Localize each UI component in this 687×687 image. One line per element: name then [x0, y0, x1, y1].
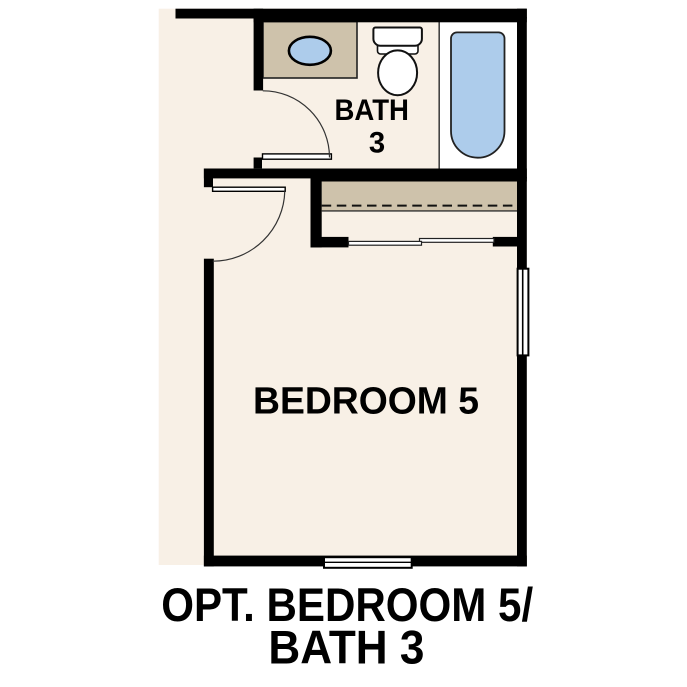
svg-text:BATH 3: BATH 3 [268, 621, 424, 674]
svg-text:3: 3 [369, 127, 385, 160]
svg-text:BATH: BATH [334, 94, 409, 127]
svg-text:BEDROOM 5: BEDROOM 5 [253, 380, 479, 423]
